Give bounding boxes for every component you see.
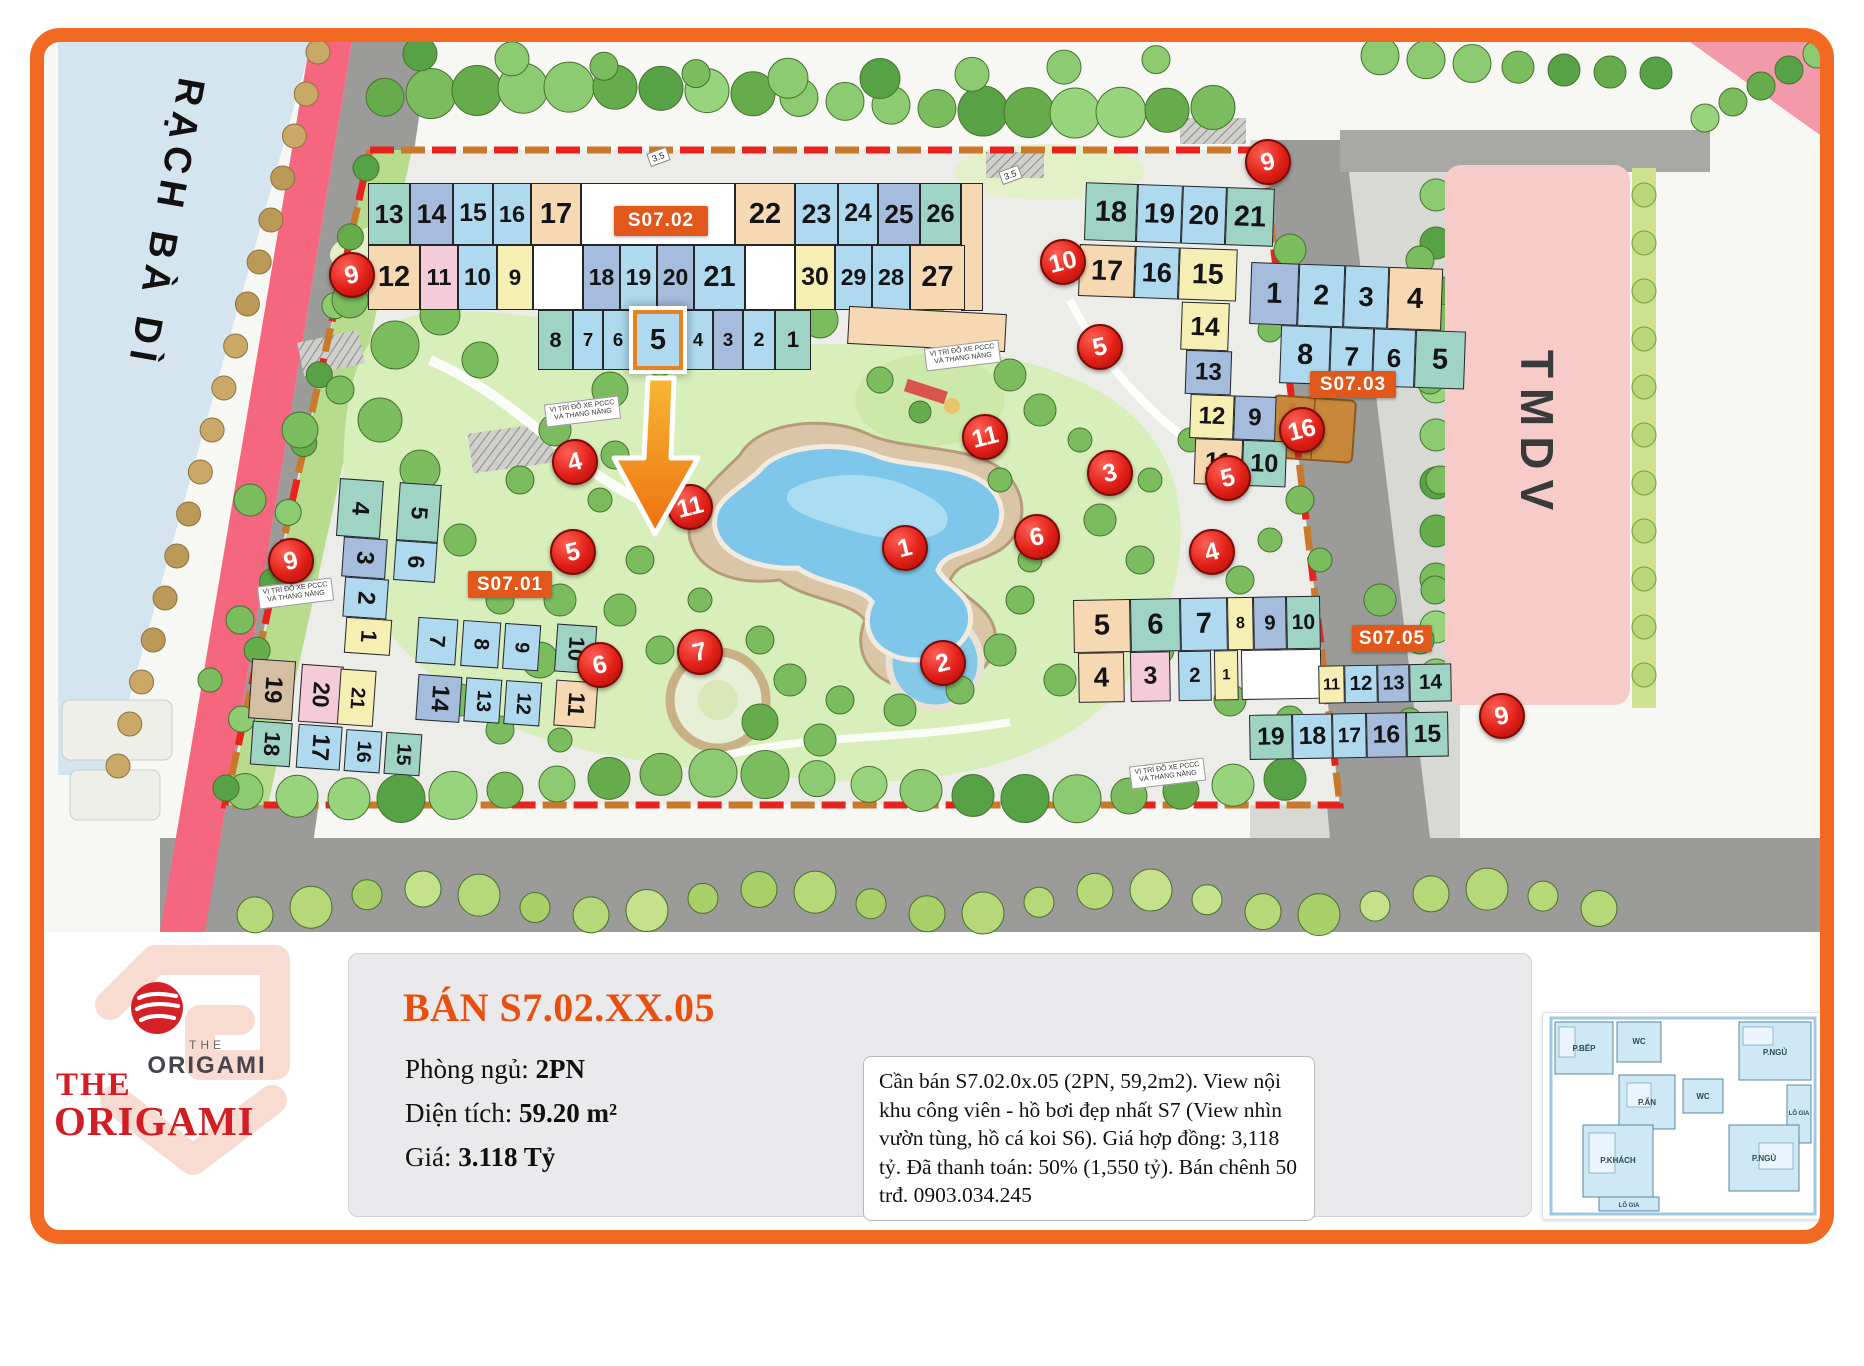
unit-cell: 9 <box>1253 596 1287 650</box>
unit-cell: 2 <box>1178 651 1212 702</box>
unit-cell: 17 <box>1332 713 1367 759</box>
building-label-s07-03: S07.03 <box>1310 371 1396 398</box>
unit-cell: 7 <box>573 310 603 370</box>
unit-cell: 2 <box>1297 264 1345 328</box>
logo-the-small: THE <box>172 1038 242 1052</box>
unit-cell: 13 <box>463 677 502 723</box>
unit-cell: 7 <box>415 617 458 666</box>
listing-title: BÁN S7.02.XX.05 <box>403 984 715 1031</box>
unit-cell: 16 <box>1366 712 1407 758</box>
amenity-marker-9: 9 <box>268 538 314 584</box>
svg-text:P.ĂN: P.ĂN <box>1638 1098 1656 1107</box>
unit-cell: 15 <box>1406 711 1449 757</box>
amenity-marker-5: 5 <box>550 529 596 575</box>
amenity-marker-1: 1 <box>882 525 928 571</box>
unit-cell: 12 <box>1189 394 1235 440</box>
unit-cell: 19 <box>1136 184 1183 244</box>
unit-cell: 14 <box>1409 663 1452 702</box>
amenity-marker-6: 6 <box>1014 514 1060 560</box>
building-label-s07-02: S07.02 <box>614 206 708 236</box>
unit-cell: 9 <box>1233 396 1277 441</box>
unit-cell: 12 <box>503 680 542 726</box>
unit-cell: 8 <box>538 310 573 370</box>
unit-cell: 5 <box>1073 599 1131 653</box>
amenity-marker-7: 7 <box>677 629 723 675</box>
unit-cell: 5 <box>1414 330 1466 390</box>
unit-cell: 19 <box>620 245 657 310</box>
unit-cell: 15 <box>1178 248 1238 302</box>
unit-cell: 6 <box>1130 598 1181 652</box>
unit-cell: 1 <box>1249 262 1299 326</box>
field-bedrooms: Phòng ngủ: 2PN <box>405 1054 585 1085</box>
unit-cell: 25 <box>878 183 920 245</box>
amenity-marker-2: 2 <box>920 640 966 686</box>
unit-cell: 4 <box>1387 267 1443 331</box>
unit-cell: 19 <box>1249 714 1293 760</box>
unit-cell: 22 <box>735 183 795 245</box>
amenity-marker-6: 6 <box>577 642 623 688</box>
unit-cell: 30 <box>795 245 835 310</box>
amenity-marker-11: 11 <box>962 414 1008 460</box>
unit-cell: 4 <box>1078 652 1125 703</box>
unit-cell <box>745 245 795 310</box>
listing-info-panel: BÁN S7.02.XX.05 Phòng ngủ: 2PN Diện tích… <box>348 953 1532 1217</box>
unit-cell: 2 <box>342 577 389 620</box>
unit-cell: 21 <box>337 669 377 727</box>
unit-cell: 14 <box>415 674 462 723</box>
unit-cell: 13 <box>368 183 410 245</box>
svg-text:P.BẾP: P.BẾP <box>1573 1043 1597 1053</box>
amenity-marker-16: 16 <box>1279 407 1325 453</box>
unit-cell: 8 <box>1227 597 1254 650</box>
unit-cell: 13 <box>1185 350 1233 396</box>
amenity-marker-5: 5 <box>1205 455 1251 501</box>
unit-cell <box>1241 649 1322 700</box>
unit-cell: 6 <box>393 540 438 583</box>
unit-cell: 28 <box>872 245 910 310</box>
svg-text:P.KHÁCH: P.KHÁCH <box>1600 1156 1636 1165</box>
unit-cell: 1 <box>1214 650 1239 700</box>
amenity-marker-5: 5 <box>1077 324 1123 370</box>
svg-text:P.NGỦ: P.NGỦ <box>1752 1154 1777 1163</box>
unit-cell: 5 <box>396 482 442 543</box>
unit-cell: 17 <box>1078 244 1136 298</box>
unit-cell: 10 <box>458 245 497 310</box>
unit-cell: 27 <box>910 245 965 310</box>
unit-cell: 15 <box>453 183 493 245</box>
unit-cell: 18 <box>583 245 620 310</box>
amenity-marker-9: 9 <box>1245 139 1291 185</box>
unit-cell-highlighted: 5 <box>633 310 683 370</box>
building-label-s07-01: S07.01 <box>468 571 552 598</box>
svg-text:WC: WC <box>1632 1037 1646 1046</box>
unit-cell: 12 <box>1344 665 1378 704</box>
logo-block: THE ORIGAMI THE ORIGAMI <box>50 925 350 1220</box>
amenity-marker-4: 4 <box>552 439 598 485</box>
unit-cell: 17 <box>531 183 581 245</box>
unit-cell: 29 <box>835 245 872 310</box>
amenity-marker-10: 10 <box>1040 239 1086 285</box>
unit-cell: 15 <box>383 732 422 776</box>
listing-description: Cần bán S7.02.0x.05 (2PN, 59,2m2). View … <box>863 1056 1315 1221</box>
floorplan-thumbnail: P.BẾP WC P.NGỦ P.ĂN WC LÔ GIA P.KHÁCH P.… <box>1542 1012 1824 1220</box>
unit-cell: 9 <box>502 623 541 671</box>
svg-text:LÔ GIA: LÔ GIA <box>1619 1201 1640 1209</box>
amenity-marker-4: 4 <box>1189 529 1235 575</box>
field-area: Diện tích: 59.20 m² <box>405 1098 617 1129</box>
amenity-marker-3: 3 <box>1087 450 1133 496</box>
unit-cell <box>533 245 583 310</box>
svg-text:WC: WC <box>1696 1092 1710 1101</box>
tmdv-label: TMDV <box>1510 350 1564 520</box>
unit-cell: 4 <box>336 478 384 539</box>
unit-cell: 19 <box>248 658 296 721</box>
unit-cell: 1 <box>344 617 392 656</box>
logo-name-big: ORIGAMI <box>54 1097 255 1145</box>
selected-unit-arrow-icon <box>600 372 720 547</box>
unit-cell: 16 <box>493 183 531 245</box>
unit-cell: 10 <box>1286 596 1321 650</box>
unit-cell: 9 <box>497 245 533 310</box>
unit-cell: 11 <box>553 680 598 729</box>
unit-cell: 11 <box>1318 665 1345 703</box>
unit-cell: 18 <box>1084 182 1138 242</box>
field-price: Giá: 3.118 Tỷ <box>405 1142 555 1173</box>
tmdv-block: TMDV <box>1445 165 1630 705</box>
unit-cell: 3 <box>1130 651 1171 702</box>
unit-cell: 3 <box>713 310 743 370</box>
unit-cell: 16 <box>344 729 383 773</box>
unit-cell: 23 <box>795 183 838 245</box>
origami-siteplan-page: RẠCH BÀ DÌ TMDV S07.02 S07.01 S07.03 S07… <box>0 0 1864 1366</box>
unit-cell: 1 <box>775 310 811 370</box>
unit-cell: 21 <box>1225 187 1275 247</box>
svg-text:P.NGỦ: P.NGỦ <box>1763 1048 1788 1057</box>
unit-cell: 3 <box>1343 265 1389 328</box>
amenity-marker-9: 9 <box>329 252 375 298</box>
unit-cell: 3 <box>341 536 388 579</box>
unit-cell: 8 <box>460 620 501 669</box>
amenity-marker-9: 9 <box>1479 693 1525 739</box>
unit-cell: 14 <box>1180 302 1230 352</box>
unit-cell: 17 <box>296 724 343 771</box>
unit-cell: 18 <box>1292 713 1333 759</box>
unit-cell: 18 <box>250 721 293 768</box>
unit-cell: 4 <box>683 310 713 370</box>
unit-cell: 20 <box>1181 186 1227 246</box>
unit-cell: 6 <box>603 310 633 370</box>
unit-cell: 2 <box>743 310 775 370</box>
unit-cell: 13 <box>1377 664 1410 703</box>
unit-cell: 20 <box>657 245 694 310</box>
unit-cell: 26 <box>920 183 961 245</box>
unit-cell: 11 <box>420 245 458 310</box>
unit-cell: 7 <box>1180 597 1228 651</box>
building-label-s07-05: S07.05 <box>1352 625 1432 652</box>
unit-cell: 14 <box>410 183 453 245</box>
unit-cell: 16 <box>1134 246 1180 300</box>
unit-cell: 12 <box>368 245 420 310</box>
svg-text:LÔ GIA: LÔ GIA <box>1789 1109 1810 1117</box>
unit-cell: 24 <box>838 183 878 245</box>
logo-name-small: ORIGAMI <box>102 1052 312 1080</box>
unit-cell: 21 <box>694 245 745 310</box>
